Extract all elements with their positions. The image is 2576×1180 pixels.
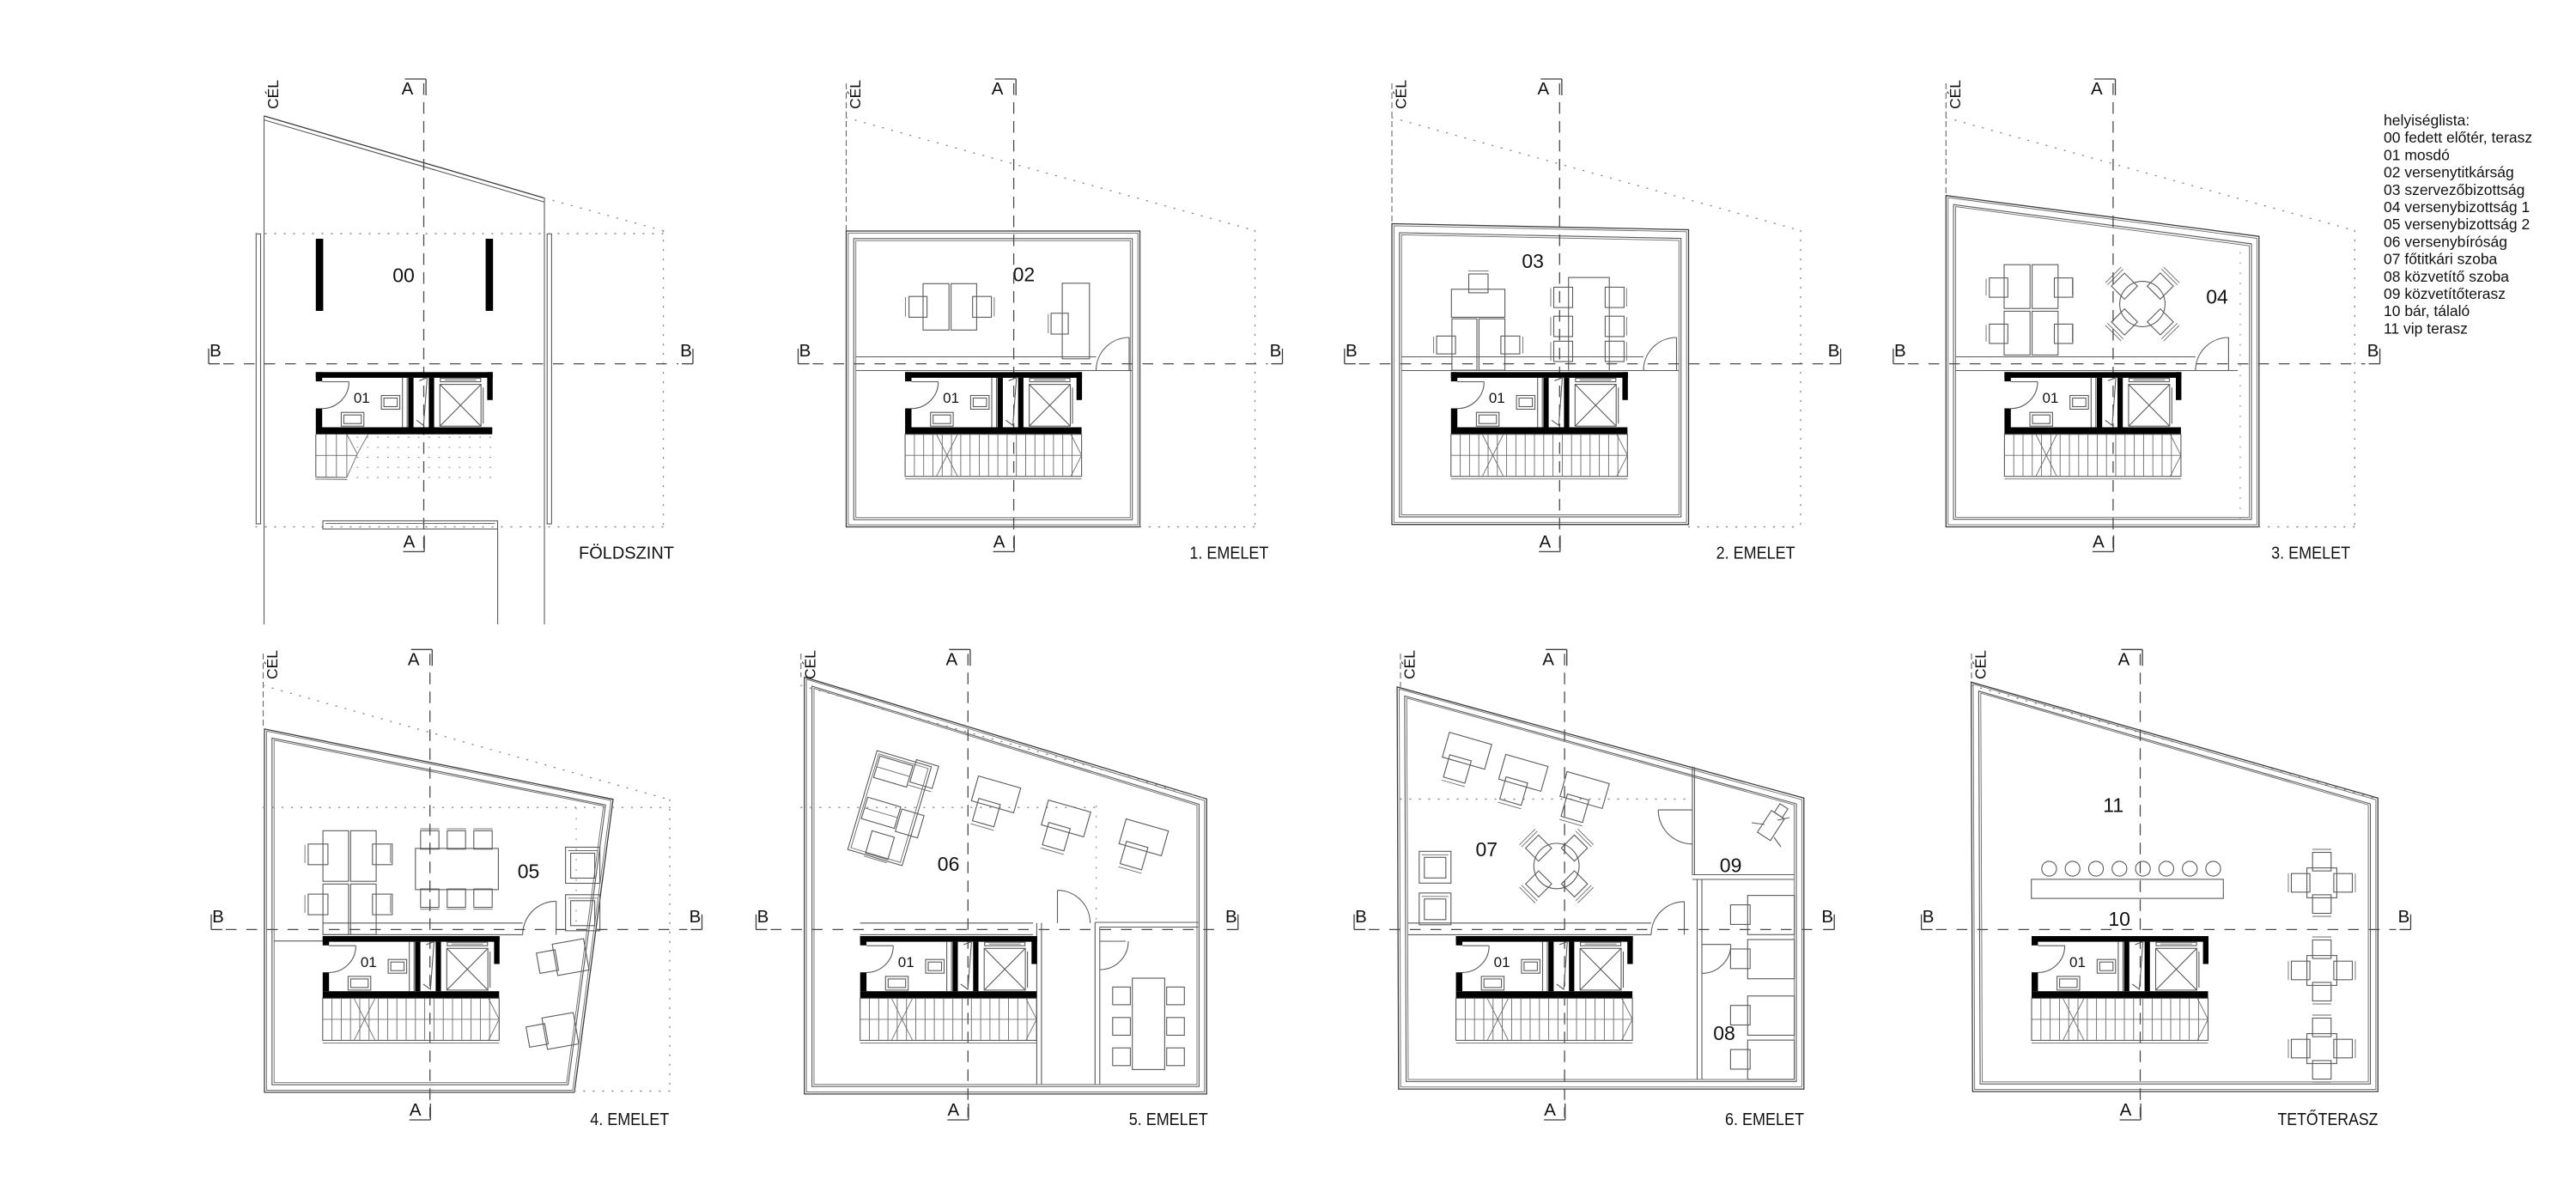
svg-text:A: A	[2120, 1100, 2132, 1120]
svg-text:CÉL: CÉL	[801, 650, 818, 679]
svg-text:01: 01	[1494, 954, 1510, 970]
svg-text:FÖLDSZINT: FÖLDSZINT	[579, 544, 674, 563]
svg-text:A: A	[1542, 649, 1554, 669]
svg-text:B: B	[1923, 907, 1935, 927]
svg-text:B: B	[1821, 907, 1833, 927]
svg-text:A: A	[993, 532, 1005, 551]
svg-text:00: 00	[392, 264, 415, 286]
svg-text:CÉL: CÉL	[264, 650, 281, 679]
svg-text:5. EMELET: 5. EMELET	[1129, 1110, 1208, 1129]
svg-text:B: B	[690, 907, 702, 927]
svg-text:3. EMELET: 3. EMELET	[2271, 544, 2350, 563]
svg-text:03: 03	[1522, 250, 1544, 272]
svg-text:A: A	[2118, 649, 2130, 669]
svg-text:A: A	[2093, 532, 2105, 551]
svg-text:01 mosdó: 01 mosdó	[2384, 146, 2450, 163]
svg-text:06: 06	[938, 853, 960, 875]
svg-text:09 közvetítőterasz: 09 közvetítőterasz	[2384, 285, 2506, 302]
svg-text:B: B	[799, 341, 811, 361]
svg-text:6. EMELET: 6. EMELET	[1725, 1110, 1804, 1129]
svg-text:1. EMELET: 1. EMELET	[1189, 544, 1268, 563]
svg-text:01: 01	[2069, 954, 2086, 970]
svg-text:05 versenybizottság 2: 05 versenybizottság 2	[2384, 216, 2530, 233]
svg-text:CÉL: CÉL	[1972, 650, 1990, 679]
svg-text:4. EMELET: 4. EMELET	[590, 1110, 669, 1129]
svg-text:B: B	[2367, 341, 2379, 361]
svg-text:09: 09	[1720, 855, 1742, 877]
svg-text:07: 07	[1476, 838, 1498, 861]
svg-text:CÉL: CÉL	[1393, 80, 1410, 109]
svg-text:A: A	[402, 79, 414, 99]
svg-text:CÉL: CÉL	[264, 80, 282, 109]
svg-text:2. EMELET: 2. EMELET	[1716, 544, 1795, 563]
svg-text:CÉL: CÉL	[1401, 650, 1419, 679]
svg-text:B: B	[1894, 341, 1906, 361]
svg-text:00 fedett előtér, terasz: 00 fedett előtér, terasz	[2384, 129, 2532, 146]
svg-text:01: 01	[943, 390, 959, 406]
svg-text:CÉL: CÉL	[847, 80, 864, 109]
svg-text:A: A	[410, 1100, 422, 1120]
svg-text:01: 01	[2042, 390, 2058, 406]
svg-text:helyiséglista:: helyiséglista:	[2384, 112, 2470, 129]
svg-text:05: 05	[518, 861, 540, 883]
svg-text:06 versenybíróság: 06 versenybíróság	[2384, 233, 2507, 250]
svg-text:07 főtitkári szoba: 07 főtitkári szoba	[2384, 251, 2498, 268]
svg-text:08 közvetítő szoba: 08 közvetítő szoba	[2384, 268, 2509, 285]
svg-text:A: A	[404, 532, 416, 551]
svg-text:A: A	[408, 649, 420, 669]
svg-text:B: B	[1828, 341, 1840, 361]
svg-text:02 versenytitkárság: 02 versenytitkárság	[2384, 164, 2514, 181]
svg-text:01: 01	[354, 390, 370, 406]
svg-text:03 szervezőbizottság: 03 szervezőbizottság	[2384, 181, 2524, 198]
svg-text:B: B	[1355, 907, 1367, 927]
svg-text:A: A	[1544, 1100, 1556, 1120]
svg-text:01: 01	[361, 954, 377, 970]
svg-text:04: 04	[2206, 286, 2228, 308]
svg-text:B: B	[1225, 907, 1237, 927]
svg-text:A: A	[945, 649, 957, 669]
svg-text:B: B	[210, 341, 222, 361]
svg-text:A: A	[2091, 79, 2103, 99]
svg-text:11 vip terasz: 11 vip terasz	[2384, 319, 2468, 337]
svg-text:B: B	[1270, 341, 1282, 361]
svg-text:A: A	[992, 79, 1004, 99]
svg-text:10: 10	[2108, 908, 2130, 930]
svg-text:01: 01	[898, 954, 914, 970]
svg-text:01: 01	[1489, 390, 1505, 406]
svg-text:CÉL: CÉL	[1947, 80, 1964, 109]
svg-text:A: A	[1539, 532, 1551, 551]
svg-text:A: A	[1537, 79, 1549, 99]
svg-text:B: B	[757, 907, 769, 927]
svg-text:10 bár, tálaló: 10 bár, tálaló	[2384, 302, 2470, 319]
svg-text:B: B	[680, 341, 692, 361]
svg-text:B: B	[2398, 907, 2410, 927]
svg-text:A: A	[947, 1100, 959, 1120]
svg-text:04 versenybizottság 1: 04 versenybizottság 1	[2384, 198, 2530, 216]
svg-text:11: 11	[2103, 794, 2123, 817]
svg-text:02: 02	[1013, 263, 1036, 285]
svg-text:TETŐTERASZ: TETŐTERASZ	[2278, 1110, 2379, 1129]
svg-text:B: B	[212, 907, 224, 927]
svg-text:B: B	[1346, 341, 1358, 361]
